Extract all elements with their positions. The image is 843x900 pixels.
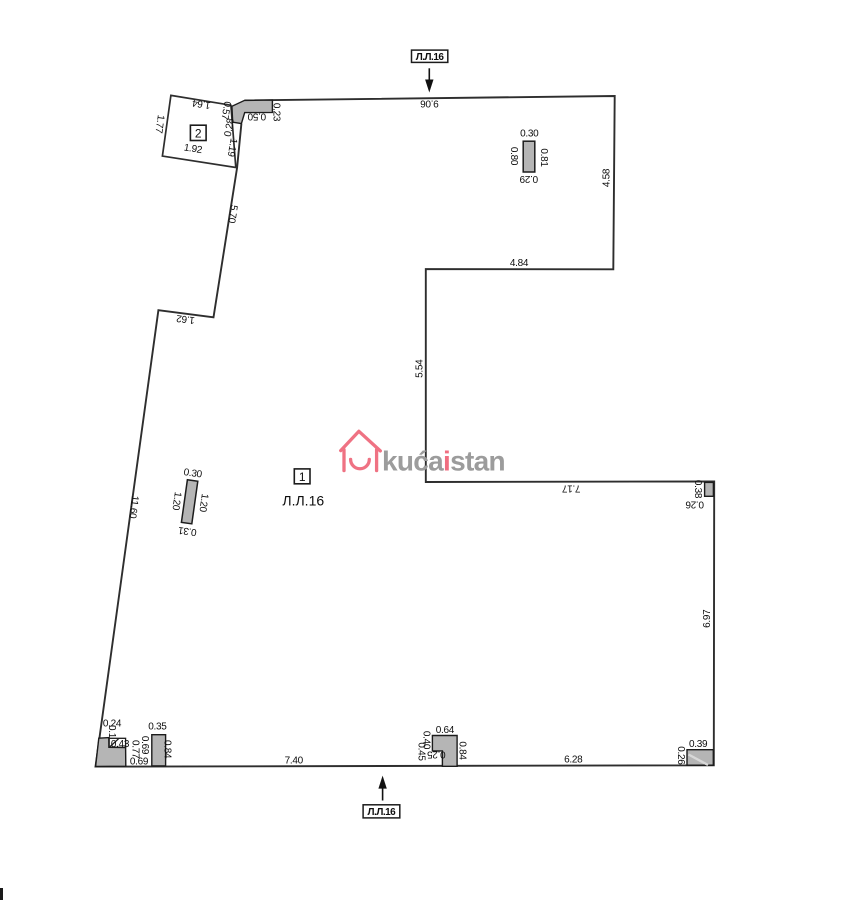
svg-text:1.20: 1.20 — [169, 491, 183, 511]
svg-text:Л.Л.16: Л.Л.16 — [282, 492, 324, 508]
svg-text:0.30: 0.30 — [520, 128, 539, 139]
svg-text:0.81: 0.81 — [538, 148, 549, 167]
svg-text:0.38: 0.38 — [692, 480, 703, 499]
svg-text:6.97: 6.97 — [702, 609, 713, 628]
svg-text:0.45: 0.45 — [416, 742, 427, 761]
svg-text:kućaistan: kućaistan — [382, 446, 505, 477]
svg-text:1.64: 1.64 — [191, 97, 211, 111]
svg-text:1.20: 1.20 — [196, 493, 210, 513]
svg-text:9.06: 9.06 — [420, 98, 439, 109]
svg-text:4.58: 4.58 — [601, 168, 612, 187]
svg-text:0.31: 0.31 — [177, 524, 197, 538]
svg-text:0.64: 0.64 — [436, 725, 455, 736]
svg-text:0.69: 0.69 — [130, 756, 149, 767]
svg-text:0.35: 0.35 — [148, 721, 167, 732]
svg-text:Л.Л.16: Л.Л.16 — [368, 807, 397, 818]
svg-text:0.25: 0.25 — [427, 749, 446, 760]
svg-text:0.28: 0.28 — [223, 117, 237, 138]
svg-text:7.40: 7.40 — [285, 755, 304, 766]
svg-text:0.29: 0.29 — [519, 173, 538, 184]
svg-text:0.39: 0.39 — [689, 739, 708, 750]
svg-text:0.69: 0.69 — [139, 736, 150, 755]
svg-text:Л.Л.16: Л.Л.16 — [416, 52, 445, 63]
svg-text:0.30: 0.30 — [183, 467, 203, 481]
svg-text:5.54: 5.54 — [415, 359, 426, 378]
svg-text:6.28: 6.28 — [564, 755, 583, 766]
svg-text:0.26: 0.26 — [685, 498, 704, 509]
svg-text:0.84: 0.84 — [457, 741, 468, 760]
svg-text:1.92: 1.92 — [183, 142, 203, 156]
svg-text:11.60: 11.60 — [126, 495, 140, 520]
svg-text:1.77: 1.77 — [152, 114, 166, 134]
svg-text:0.84: 0.84 — [162, 740, 173, 759]
svg-text:1.19: 1.19 — [225, 137, 239, 158]
svg-text:0.26: 0.26 — [675, 746, 686, 765]
svg-text:1: 1 — [299, 470, 306, 484]
svg-text:0.80: 0.80 — [508, 147, 519, 166]
svg-text:7.17: 7.17 — [562, 482, 581, 493]
svg-text:0.1: 0.1 — [106, 725, 117, 739]
svg-text:2: 2 — [195, 127, 202, 141]
svg-text:5.70: 5.70 — [225, 204, 239, 224]
svg-text:0.43: 0.43 — [111, 739, 130, 750]
svg-text:0.23: 0.23 — [271, 103, 282, 122]
svg-text:1.62: 1.62 — [175, 312, 195, 325]
svg-text:0.50: 0.50 — [247, 111, 266, 122]
svg-text:4.84: 4.84 — [510, 258, 529, 269]
